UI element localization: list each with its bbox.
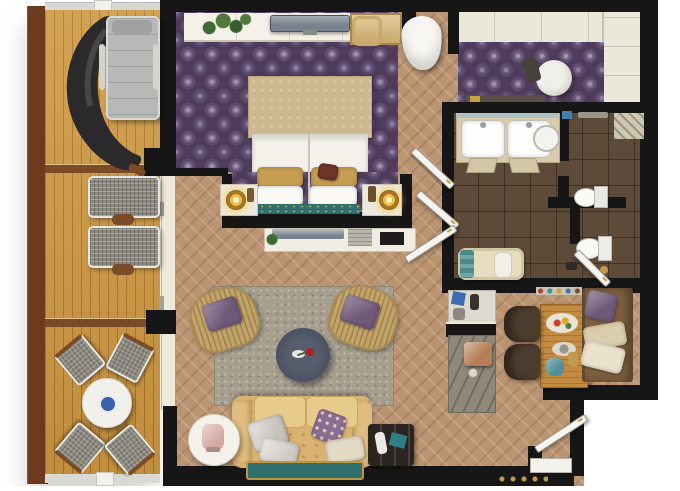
toilet-tank: [594, 186, 608, 208]
coffee-cup: [468, 368, 478, 378]
railing-post: [96, 472, 114, 486]
wall-bidet-left: [570, 208, 580, 244]
wall-bathroom-left: [442, 102, 454, 292]
accent-pillow: [317, 163, 339, 182]
teal-towels: [460, 250, 474, 278]
door-handle: [159, 296, 164, 310]
wall-bedroom-left: [160, 0, 176, 152]
gold-accessory: [568, 352, 578, 366]
faucet: [480, 122, 486, 128]
white-pillow: [309, 186, 357, 206]
lounge-chair: [88, 226, 160, 268]
bedside-lamp: [226, 190, 246, 210]
door-handle: [446, 179, 451, 184]
vanity-stool: [508, 158, 540, 173]
bench-purple-pillow: [583, 289, 618, 323]
minibar-blue-item: [451, 291, 466, 306]
blue-bowl: [99, 395, 117, 413]
lounger-arm: [99, 44, 105, 90]
wall-bathroom-top: [446, 102, 658, 113]
wardrobe-right: [602, 12, 642, 104]
breakfast-plate: [546, 313, 578, 333]
deck-side-table: [112, 264, 134, 275]
shower-screen: [614, 113, 644, 139]
door-handle: [602, 277, 607, 282]
tv-bracket: [303, 30, 317, 35]
lounger-arm: [153, 44, 159, 90]
wall-deck-pier: [146, 310, 176, 334]
bidet-tank: [598, 236, 612, 261]
minibar-kettle: [453, 308, 465, 320]
coffee-machine: [464, 342, 492, 366]
gold-pillow: [257, 167, 303, 187]
foot-bench: [246, 461, 364, 480]
gold-floor-dots: [498, 476, 548, 482]
teal-teapot: [546, 358, 564, 376]
white-pillow: [255, 186, 303, 206]
vanity-stool: [466, 158, 498, 173]
vanity-chair: [352, 16, 382, 46]
door-handle: [450, 220, 455, 225]
bed-runner: [258, 204, 360, 214]
wall-entry-right: [570, 400, 584, 476]
entry-threshold: [530, 458, 572, 473]
dark-accessory: [566, 262, 577, 270]
lounge-chair: [88, 176, 160, 218]
glass-sliding-wall: [161, 176, 176, 410]
wall-bedroom-step: [176, 168, 228, 176]
bedside-lamp: [379, 190, 399, 210]
lounger-headrest: [112, 20, 152, 34]
floor-plan: [0, 0, 680, 491]
bed-canopy: [248, 76, 372, 138]
white-towel: [494, 252, 512, 278]
magazines: [348, 229, 372, 246]
door-handle: [578, 418, 583, 422]
dining-chair: [504, 344, 540, 380]
minibar-bottle: [470, 294, 479, 310]
wall-dressing-stub: [448, 12, 459, 54]
lamp-base: [206, 447, 220, 452]
console-tv: [272, 229, 344, 239]
console-plant: [266, 231, 278, 248]
rose: [306, 348, 314, 356]
nightstand-accessory: [368, 186, 376, 202]
door-handle: [447, 228, 452, 232]
plant: [198, 11, 254, 39]
shelf-accessory: [578, 112, 608, 118]
blue-glass-accessory: [562, 111, 572, 119]
exterior: [0, 486, 680, 491]
faucet: [526, 122, 532, 128]
deck-side-table: [112, 214, 134, 225]
deck-divider: [45, 318, 160, 327]
nightstand-accessory: [247, 188, 254, 202]
round-pouf: [536, 60, 572, 96]
vanity-shelf: [456, 113, 558, 118]
wall-right: [640, 0, 658, 402]
exterior: [658, 0, 680, 491]
console-box: [380, 232, 404, 245]
vessel-bowl: [533, 125, 560, 152]
spice-shelf: [536, 287, 582, 295]
dining-chair: [504, 306, 540, 342]
exterior: [584, 400, 660, 491]
